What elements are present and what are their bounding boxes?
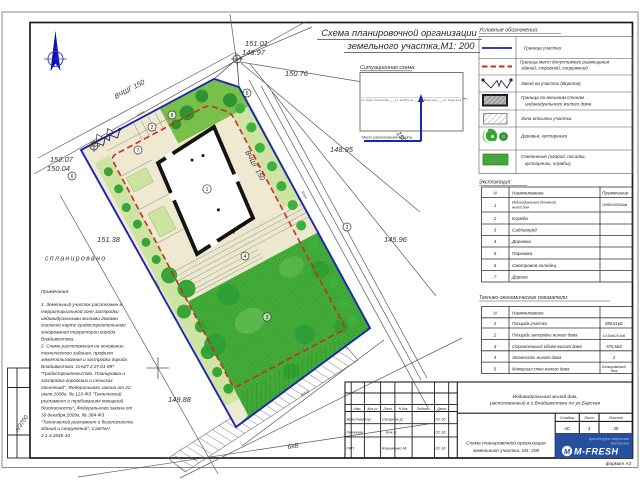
svg-text:формат А3: формат А3 xyxy=(606,461,632,466)
svg-text:зонирования территории города: зонирования территории города xyxy=(40,330,116,335)
svg-text:АС: АС xyxy=(563,426,571,431)
svg-text:мастерская: мастерская xyxy=(611,442,629,446)
svg-text:150.76: 150.76 xyxy=(285,69,309,78)
svg-text:39: 39 xyxy=(613,426,619,431)
svg-text:Граница участка: Граница участка xyxy=(524,46,562,51)
svg-text:M: M xyxy=(564,447,571,456)
svg-text:5: 5 xyxy=(494,251,497,256)
svg-text:Лист: Лист xyxy=(382,407,392,411)
svg-text:145.96: 145.96 xyxy=(384,235,408,244)
svg-text:1. Земельный участок расположе: 1. Земельный участок расположен в xyxy=(41,301,123,307)
svg-text:Бок Е: Бок Е xyxy=(386,430,397,435)
svg-text:Индивидуальный (блочный): Индивидуальный (блочный) xyxy=(512,201,556,205)
svg-text:земельного участка, М1: 200: земельного участка, М1: 200 xyxy=(472,448,540,454)
svg-text:ул.Адм.Горшкова___ул.Нейбута__: ул.Адм.Горшкова___ул.Нейбута___ул.Барска… xyxy=(361,98,462,102)
svg-text:Условные обозначения:: Условные обозначения: xyxy=(478,28,539,34)
svg-text:Граница мест допустимого разме: Граница мест допустимого размещения xyxy=(520,60,610,65)
svg-text:Стадия: Стадия xyxy=(560,416,574,420)
svg-text:148.97: 148.97 xyxy=(242,48,266,57)
svg-text:Примечание: Примечание xyxy=(602,191,629,196)
svg-text:Деревья, кустарники: Деревья, кустарники xyxy=(520,134,568,139)
svg-text:Смирнов Д: Смирнов Д xyxy=(382,417,403,422)
svg-text:Архитектурно-творческая: Архитектурно-творческая xyxy=(589,437,629,441)
svg-text:Владивостока, СНиП 2.07.01-89*: Владивостока, СНиП 2.07.01-89* xyxy=(41,364,114,369)
svg-text:Материал стен жилого дома: Материал стен жилого дома xyxy=(512,367,570,372)
svg-text:Площадь участка: Площадь участка xyxy=(512,321,548,326)
svg-text:8: 8 xyxy=(171,113,174,119)
svg-text:5: 5 xyxy=(246,91,249,97)
svg-text:безопасности", Федерального за: безопасности", Федерального закона от xyxy=(41,406,133,411)
svg-text:Этажность жилого дома: Этажность жилого дома xyxy=(512,355,562,360)
svg-text:кустарники, клумбы): кустарники, клумбы) xyxy=(525,161,571,166)
svg-text:согласно карте градостроительн: согласно карте градостроительного xyxy=(41,323,126,328)
svg-text:Парковка: Парковка xyxy=(512,251,533,256)
svg-text:N док.: N док. xyxy=(399,407,409,411)
svg-text:7: 7 xyxy=(494,275,497,280)
svg-text:Смотровой колодец: Смотровой колодец xyxy=(512,262,556,268)
svg-text:890,81м2: 890,81м2 xyxy=(605,321,623,326)
svg-text:индивидуального жилого дома: индивидуального жилого дома xyxy=(525,102,592,107)
svg-text:30 декабря 2009г. № 384-ФЗ: 30 декабря 2009г. № 384-ФЗ xyxy=(41,412,104,417)
svg-text:территориальной зоне застройки: территориальной зоне застройки xyxy=(41,308,119,314)
svg-text:"Градостроительство. Планировк: "Градостроительство. Планировка и xyxy=(41,371,125,376)
svg-text:3: 3 xyxy=(266,315,269,321)
svg-text:3: 3 xyxy=(346,225,349,231)
svg-text:3: 3 xyxy=(588,426,591,431)
svg-text:152.07: 152.07 xyxy=(50,155,74,164)
svg-text:4: 4 xyxy=(494,355,497,360)
svg-text:Подпись: Подпись xyxy=(417,407,431,411)
svg-text:Технико-экономические показате: Технико-экономические показатели: xyxy=(479,295,569,301)
svg-text:Клумба: Клумба xyxy=(512,216,528,221)
svg-text:2: 2 xyxy=(151,125,154,131)
svg-text:застройка городских и сельских: застройка городских и сельских xyxy=(40,377,113,383)
svg-text:ГАП: ГАП xyxy=(347,446,354,451)
svg-text:Зона отсыпки участка: Зона отсыпки участка xyxy=(521,116,572,121)
svg-text:Листов: Листов xyxy=(608,416,623,420)
svg-text:блок: блок xyxy=(611,369,618,373)
svg-text:землепользования и застройка г: землепользования и застройка города xyxy=(40,356,127,362)
svg-text:Площадь застройки жилого дома: Площадь застройки жилого дома xyxy=(512,333,578,338)
svg-text:2.1.3.2645-10.: 2.1.3.2645-10. xyxy=(40,433,71,438)
svg-text:4: 4 xyxy=(244,254,247,260)
svg-text:Озеленение (огород, посадки,: Озеленение (огород, посадки, xyxy=(521,154,586,159)
svg-text:Сад/огород: Сад/огород xyxy=(512,228,537,233)
svg-text:спланировано: спланировано xyxy=(45,256,106,263)
svg-text:3: 3 xyxy=(494,228,497,233)
svg-text:1: 1 xyxy=(206,187,209,193)
svg-text:Граница по внешним стенам: Граница по внешним стенам xyxy=(521,95,585,100)
svg-text:Дата: Дата xyxy=(436,407,446,411)
svg-text:1: 1 xyxy=(494,203,497,208)
svg-text:Экспликация:: Экспликация: xyxy=(479,180,512,186)
svg-text:зданий, строений, сооружений: зданий, строений, сооружений xyxy=(520,65,588,71)
svg-text:Строительный объём жилого дома: Строительный объём жилого дома xyxy=(512,344,582,349)
svg-text:Схема планировочной организаци: Схема планировочной организация xyxy=(466,440,546,447)
svg-text:675,5м3: 675,5м3 xyxy=(606,344,622,349)
svg-text:Схема планировочной организаци: Схема планировочной организации xyxy=(321,27,477,38)
svg-text:жилой дом: жилой дом xyxy=(511,206,530,210)
svg-text:Лист: Лист xyxy=(583,416,594,420)
svg-text:"Технический регламент о безоп: "Технический регламент о безопасности xyxy=(41,418,133,424)
svg-text:Дорога: Дорога xyxy=(511,275,528,280)
svg-text:6: 6 xyxy=(71,174,74,180)
svg-text:01.16: 01.16 xyxy=(436,446,447,451)
svg-text:Наименование: Наименование xyxy=(512,311,544,316)
svg-text:поселений", Федерального закон: поселений", Федерального закона от 22 xyxy=(41,384,131,390)
svg-text:Заказчик: Заказчик xyxy=(347,430,365,435)
svg-text:Изм.: Изм. xyxy=(354,407,361,411)
svg-text:2. Схема расположения на основ: 2. Схема расположения на основании xyxy=(40,343,124,348)
svg-text:земельного участка,М1: 200: земельного участка,М1: 200 xyxy=(347,40,476,51)
svg-text:Владивостока.: Владивостока. xyxy=(41,337,74,342)
svg-text:149.88: 149.88 xyxy=(168,395,192,404)
svg-text:151.01: 151.01 xyxy=(245,39,268,48)
svg-text:Дорожка: Дорожка xyxy=(511,239,531,244)
svg-text:2: 2 xyxy=(493,333,497,338)
svg-text:расположенный в г.Владивостоке: расположенный в г.Владивостоке по ул.Бар… xyxy=(489,400,601,407)
svg-text:Заезд на участок (Ворота): Заезд на участок (Ворота) xyxy=(521,81,581,86)
svg-text:Кол.уч: Кол.уч xyxy=(367,407,377,411)
svg-text:июля 2008г, № 123-ФЗ "Техничес: июля 2008г, № 123-ФЗ "Технический xyxy=(41,391,122,397)
svg-text:2: 2 xyxy=(493,216,497,221)
svg-text:индивидуальными жилыми домами: индивидуальными жилыми домами xyxy=(41,316,118,321)
svg-text:Примечания:: Примечания: xyxy=(41,289,70,294)
svg-text:148.95: 148.95 xyxy=(330,145,354,154)
svg-text:Место расположения объекта: Место расположения объекта xyxy=(362,136,412,140)
svg-text:зданий и сооружений", СанПиН: зданий и сооружений", СанПиН xyxy=(40,425,110,431)
svg-text:01.16: 01.16 xyxy=(436,430,447,435)
svg-text:10850х10500мм: 10850х10500мм xyxy=(602,203,628,207)
svg-text:Казьменко М: Казьменко М xyxy=(382,446,407,451)
svg-text:4: 4 xyxy=(494,239,497,244)
svg-text:1: 1 xyxy=(494,321,497,326)
svg-text:Архитектор: Архитектор xyxy=(346,417,372,422)
svg-text:2: 2 xyxy=(612,355,616,360)
svg-text:Наименование: Наименование xyxy=(512,191,544,196)
svg-text:151.38: 151.38 xyxy=(97,235,121,244)
svg-text:3: 3 xyxy=(494,344,497,349)
svg-text:технического задания, профиля: технического задания, профиля xyxy=(41,350,113,355)
svg-text:10,43х6/18,1м5: 10,43х6/18,1м5 xyxy=(603,334,626,338)
svg-text:регламент о требованиях пожарн: регламент о требованиях пожарной xyxy=(40,398,124,404)
svg-text:01.16: 01.16 xyxy=(436,417,447,422)
svg-text:M-FRESH: M-FRESH xyxy=(574,447,619,457)
svg-text:5: 5 xyxy=(494,367,497,372)
svg-text:6: 6 xyxy=(494,263,497,268)
svg-text:7: 7 xyxy=(137,148,140,154)
svg-text:Индивидуальный жилой дом,: Индивидуальный жилой дом, xyxy=(513,393,578,400)
svg-text:150.04: 150.04 xyxy=(47,164,70,173)
svg-text:Ситуационная схема:: Ситуационная схема: xyxy=(360,65,416,71)
